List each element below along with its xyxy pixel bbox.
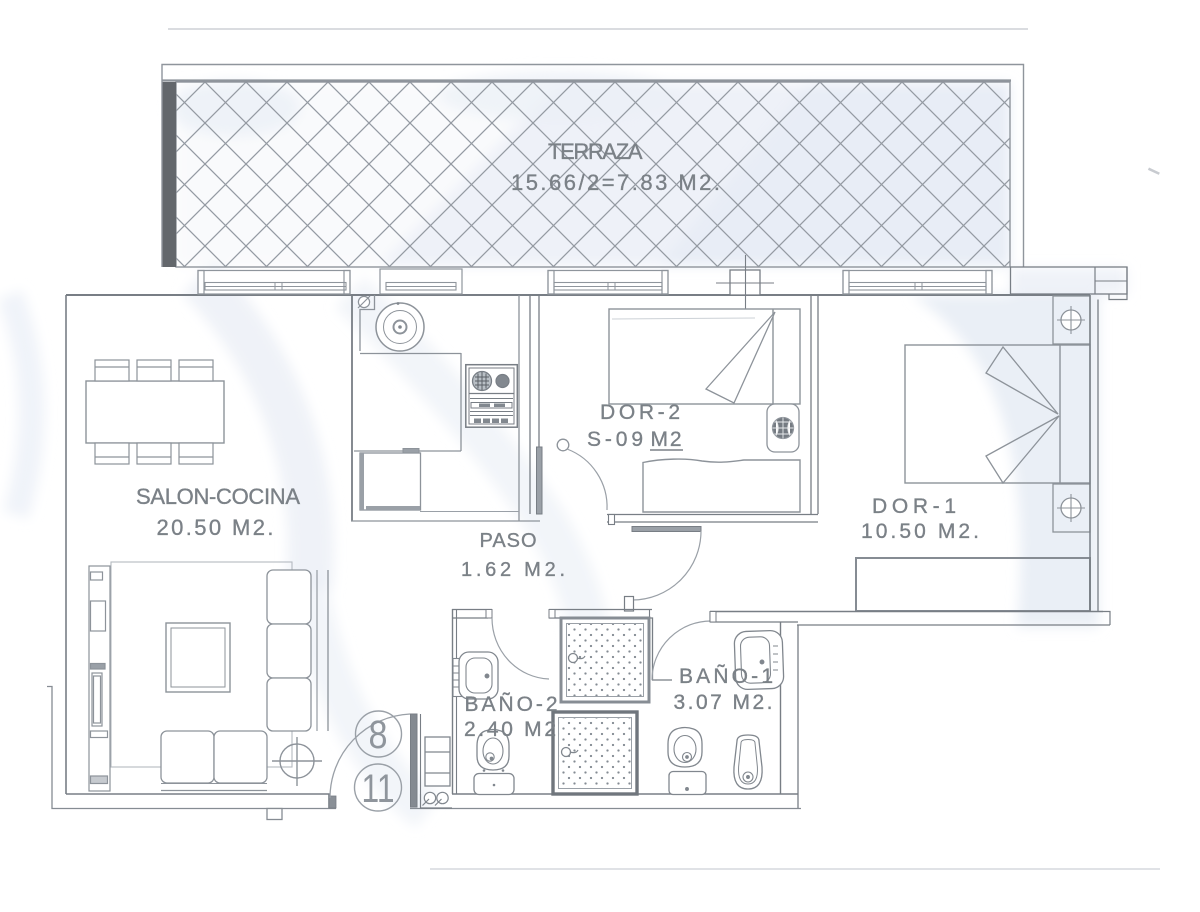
svg-text:SALON-COCINA: SALON-COCINA: [136, 484, 300, 509]
svg-text:PASO: PASO: [480, 530, 537, 552]
svg-text:TERRAZA: TERRAZA: [548, 139, 644, 164]
svg-text:S-09: S-09: [587, 428, 643, 451]
svg-text:11: 11: [362, 767, 395, 811]
svg-text:M2: M2: [651, 428, 682, 451]
svg-text:10.50 M2.: 10.50 M2.: [861, 520, 979, 543]
svg-text:8: 8: [369, 713, 388, 757]
svg-text:DOR-1: DOR-1: [872, 495, 956, 518]
svg-text:20.50 M2.: 20.50 M2.: [157, 515, 274, 540]
